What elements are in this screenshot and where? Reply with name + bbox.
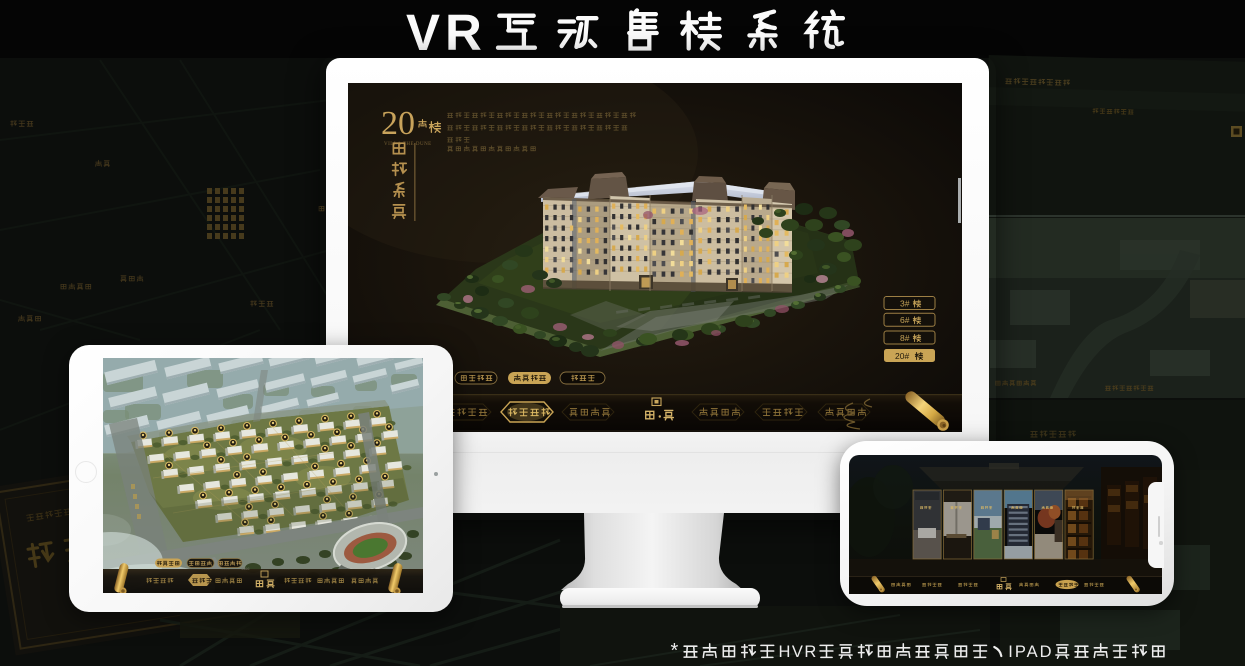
svg-text:8#: 8# — [900, 333, 910, 343]
svg-text:20#: 20# — [895, 351, 909, 361]
svg-text:IPAD: IPAD — [1008, 643, 1053, 661]
svg-text:1366: 1366 — [241, 567, 249, 571]
svg-text:20: 20 — [381, 105, 415, 142]
svg-text:3#: 3# — [900, 299, 910, 309]
svg-text:VILLA THE DUNE: VILLA THE DUNE — [384, 142, 432, 147]
svg-text:6#: 6# — [900, 315, 910, 325]
svg-text:VR: VR — [406, 4, 487, 60]
svg-text:HVR: HVR — [779, 643, 818, 661]
svg-text:*: * — [671, 640, 679, 662]
